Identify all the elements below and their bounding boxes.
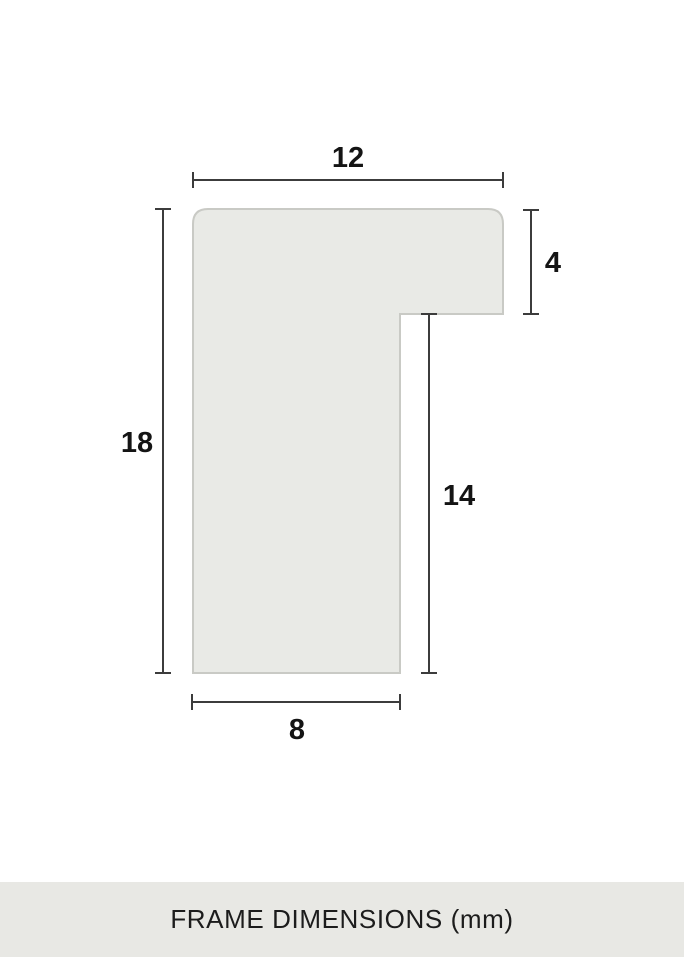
dimension-label-top-width: 12 [332, 142, 364, 174]
dimension-label-left-height: 18 [121, 427, 153, 459]
footer-bar: FRAME DIMENSIONS (mm) [0, 882, 684, 957]
dimension-top-width: 12 [193, 142, 503, 188]
dimension-left-height: 18 [121, 209, 171, 673]
frame-cross-section-shape [193, 209, 503, 673]
dimension-bottom-width: 8 [192, 694, 400, 746]
dimension-inner-height: 14 [421, 314, 475, 673]
frame-profile-diagram: 12 18 4 14 8 [0, 0, 684, 882]
footer-title: FRAME DIMENSIONS (mm) [170, 904, 513, 935]
dimension-right-height: 4 [523, 210, 561, 314]
dimension-label-inner-height: 14 [443, 480, 475, 512]
diagram-canvas: 12 18 4 14 8 [0, 0, 684, 882]
dimension-label-right-height: 4 [545, 247, 561, 279]
dimension-label-bottom-width: 8 [289, 714, 305, 746]
